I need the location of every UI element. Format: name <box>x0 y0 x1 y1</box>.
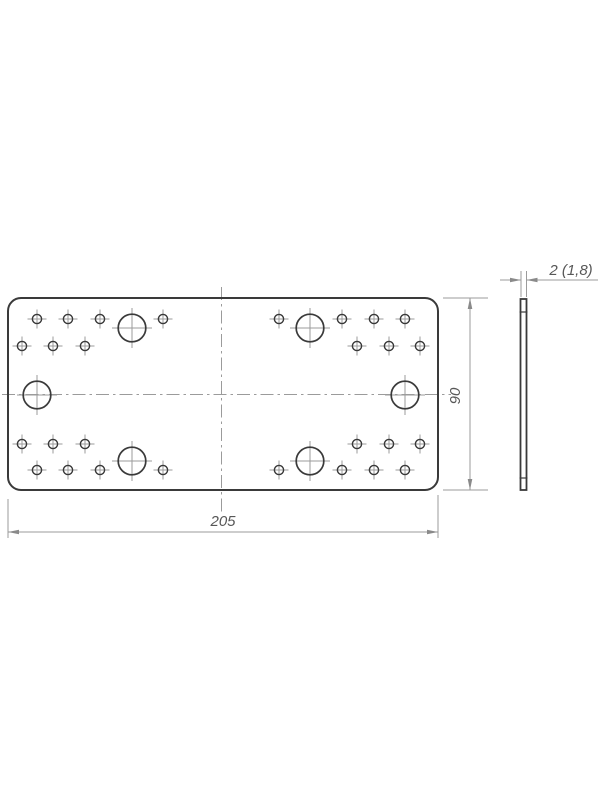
drawing-canvas: 205 90 2 (1,8) <box>0 0 600 800</box>
width-dimension-label: 205 <box>209 513 236 530</box>
height-arrow-top <box>468 298 473 309</box>
thickness-dimension-label: 2 (1,8) <box>548 262 592 279</box>
width-arrow-left <box>8 530 19 535</box>
dimension-lines-layer <box>8 271 598 538</box>
side-view-outline <box>521 299 527 490</box>
height-arrow-bottom <box>468 479 473 490</box>
width-arrow-right <box>427 530 438 535</box>
thickness-arrow-left <box>510 278 521 283</box>
height-dimension-label: 90 <box>447 387 464 404</box>
thickness-arrow-right <box>527 278 538 283</box>
centerlines-layer <box>2 287 451 512</box>
technical-drawing: 205 90 2 (1,8) <box>0 0 600 800</box>
side-view-profile <box>520 299 528 490</box>
